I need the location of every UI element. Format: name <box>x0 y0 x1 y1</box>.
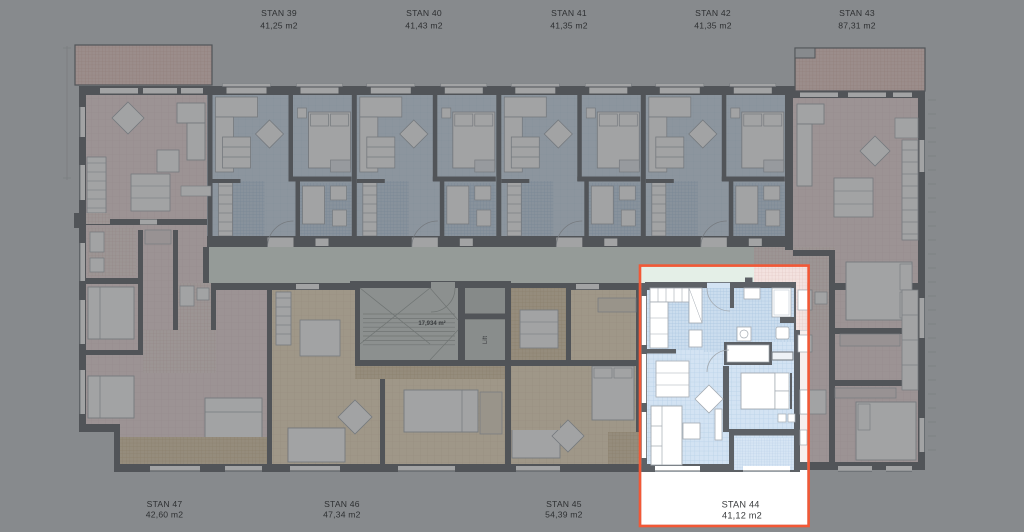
svg-text:54,39 m2: 54,39 m2 <box>545 510 582 520</box>
svg-text:STAN 41: STAN 41 <box>551 8 587 18</box>
svg-text:87,31 m2: 87,31 m2 <box>838 21 875 31</box>
svg-text:STAN 46: STAN 46 <box>324 499 360 509</box>
svg-text:41,35 m2: 41,35 m2 <box>694 21 731 31</box>
svg-text:STAN 43: STAN 43 <box>839 8 875 18</box>
svg-text:42,60 m2: 42,60 m2 <box>146 510 183 520</box>
svg-text:41,12 m2: 41,12 m2 <box>722 511 762 521</box>
svg-text:STAN 45: STAN 45 <box>546 499 582 509</box>
svg-text:41,35 m2: 41,35 m2 <box>550 21 587 31</box>
svg-text:STAN 47: STAN 47 <box>147 499 183 509</box>
svg-text:STAN 40: STAN 40 <box>406 8 442 18</box>
svg-text:STAN 44: STAN 44 <box>722 500 760 510</box>
svg-text:47,34 m2: 47,34 m2 <box>323 510 360 520</box>
svg-text:STAN 39: STAN 39 <box>261 8 297 18</box>
svg-text:41,25 m2: 41,25 m2 <box>260 21 297 31</box>
svg-text:41,43 m2: 41,43 m2 <box>405 21 442 31</box>
svg-text:STAN 42: STAN 42 <box>695 8 731 18</box>
